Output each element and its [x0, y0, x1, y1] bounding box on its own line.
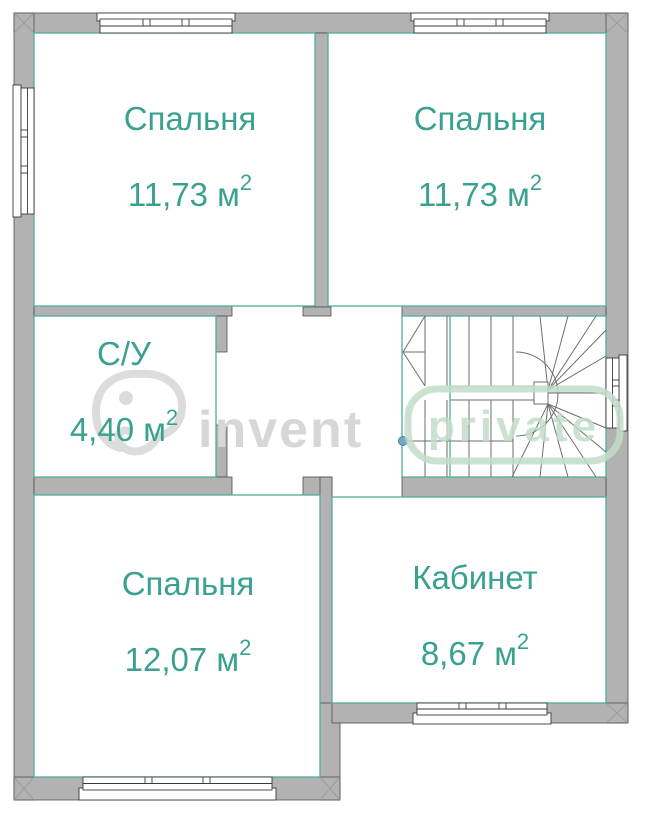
room-border-office	[332, 497, 606, 703]
window-bottom-right	[413, 703, 551, 724]
wall-divider-top-foot	[303, 307, 331, 316]
window-top-right	[411, 13, 549, 33]
wall-bathroom-top	[34, 306, 232, 316]
stairs	[399, 316, 607, 477]
invent-logo-watermark	[96, 374, 182, 452]
room-border-bedroom-bottom	[34, 495, 320, 777]
floorplan-svg: invent private	[0, 0, 645, 813]
wall-divider-top-bedrooms	[315, 33, 328, 307]
watermark: invent private	[96, 374, 620, 461]
window-bottom-left	[79, 777, 276, 800]
wall-stairs-bottom	[402, 477, 606, 497]
window-top-left	[97, 13, 235, 33]
wall-bathroom-right-upper	[216, 316, 227, 352]
watermark-brand-text: invent	[198, 401, 363, 459]
room-border-bedroom-top-right	[328, 33, 606, 306]
window-left	[13, 85, 34, 217]
room-border-bedroom-top-left	[34, 33, 315, 306]
floorplan: invent private Спальня 11,73 м2 Спальня …	[0, 0, 645, 813]
wall-divider-bottom	[320, 477, 332, 707]
wall-bathroom-bottom	[34, 477, 232, 495]
wall-stairs-top	[402, 306, 606, 316]
watermark-badge-text: private	[428, 402, 600, 451]
